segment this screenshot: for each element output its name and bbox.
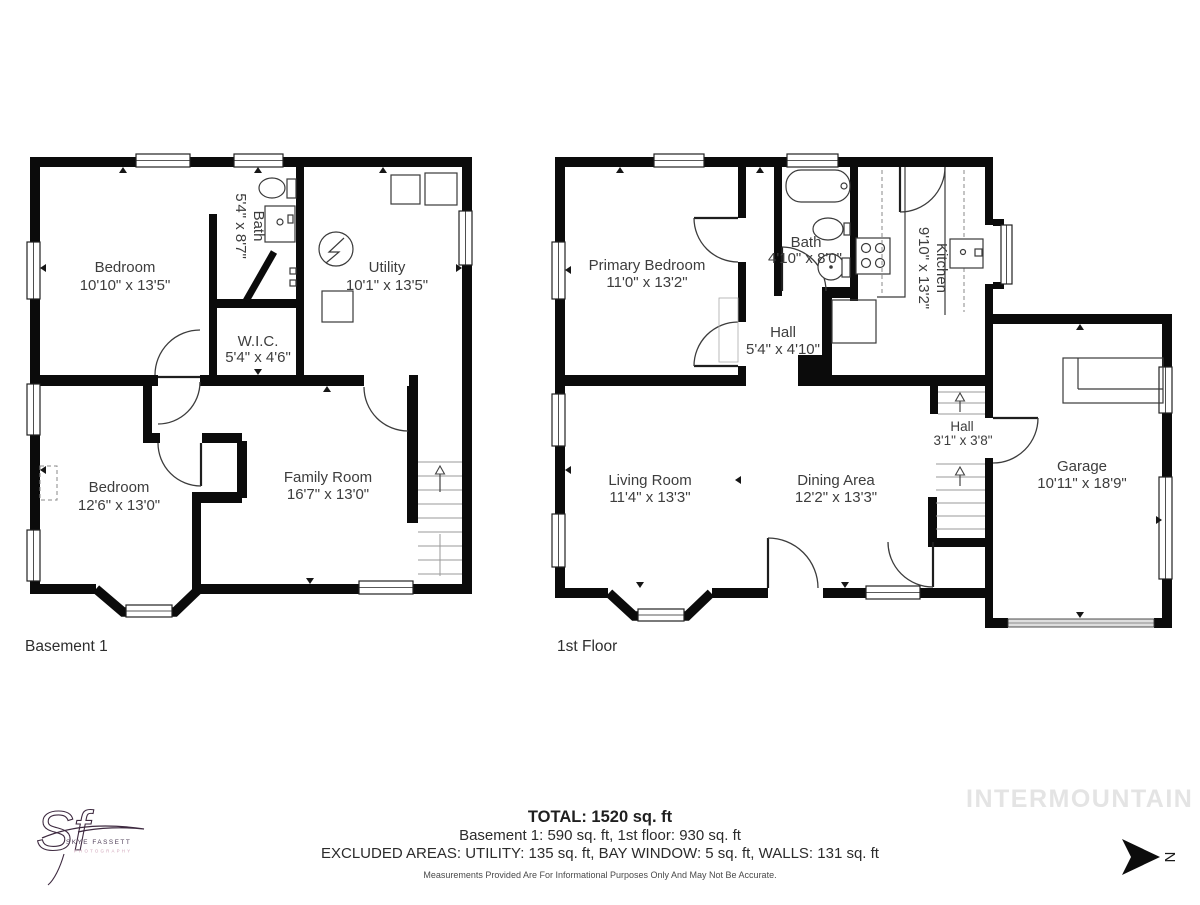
first-floor-plan: Primary Bedroom 11'0" x 13'2" Bath 4'10"… — [552, 154, 1172, 655]
room-dims: 12'2" x 13'3" — [795, 489, 877, 506]
summary-total: TOTAL: 1520 sq. ft — [528, 808, 673, 826]
window — [1159, 477, 1172, 579]
room-dims: 9'10" x 13'2" — [915, 227, 932, 309]
window — [552, 514, 565, 567]
basement-plan: Bedroom 10'10" x 13'5" Bath 5'4" x 8'7" … — [25, 154, 472, 655]
water-heater-icon — [319, 232, 353, 266]
logo-subtitle: PHOTOGRAPHY — [74, 849, 132, 854]
plumbing-fixture-icon — [290, 268, 296, 274]
chimney — [798, 355, 832, 378]
kitchen-sink-icon — [950, 239, 983, 268]
room-label-bath-rotated: Bath 5'4" x 8'7" — [232, 193, 267, 259]
bay-window — [126, 605, 172, 617]
window — [459, 211, 472, 265]
workbench-icon — [1063, 358, 1163, 403]
window — [552, 242, 565, 299]
room-dims: 11'0" x 13'2" — [606, 274, 687, 291]
summary-floors: Basement 1: 590 sq. ft, 1st floor: 930 s… — [459, 827, 742, 844]
first-floor-wall-ticks — [565, 167, 1162, 618]
basement-stairs — [418, 462, 462, 576]
room-name: Bedroom — [95, 259, 156, 276]
room-name: Utility — [369, 259, 406, 276]
floor-label-basement: Basement 1 — [25, 638, 108, 655]
room-dims: 11'4" x 13'3" — [609, 489, 690, 506]
room-dims: 5'4" x 4'6" — [225, 349, 291, 366]
floor-plan-canvas: Bedroom 10'10" x 13'5" Bath 5'4" x 8'7" … — [0, 0, 1200, 900]
room-dims: 10'10" x 13'5" — [80, 277, 171, 294]
summary-excluded: EXCLUDED AREAS: UTILITY: 135 sq. ft, BAY… — [321, 845, 880, 862]
room-name: Hall — [770, 324, 796, 341]
window — [1159, 367, 1172, 413]
room-name: W.I.C. — [238, 333, 279, 350]
room-name: Primary Bedroom — [589, 257, 706, 274]
window — [552, 394, 565, 446]
window — [1001, 225, 1012, 284]
plumbing-fixture-icon — [290, 280, 296, 286]
intermountain-watermark: INTERMOUNTAIN — [966, 785, 1193, 813]
shower-wall — [246, 252, 274, 301]
window — [27, 242, 40, 299]
room-name: Hall — [950, 419, 973, 434]
first-floor-stairs — [936, 392, 985, 529]
garage-door — [1008, 619, 1154, 627]
appliance-icon — [425, 173, 457, 205]
room-name: Bedroom — [89, 479, 150, 496]
window — [654, 154, 704, 167]
first-floor-windows — [552, 154, 1172, 621]
room-name: Bath — [250, 211, 267, 242]
window — [359, 581, 413, 594]
floorplan-page: { "plans": { "basement": { "floor_label"… — [0, 0, 1200, 900]
summary-disclaimer: Measurements Provided Are For Informatio… — [423, 870, 776, 880]
window — [27, 530, 40, 581]
logo-name: SKYE FASSETT — [66, 839, 131, 846]
room-name: Living Room — [608, 472, 691, 489]
window — [27, 384, 40, 435]
window — [787, 154, 838, 167]
basement-room-labels: Bedroom 10'10" x 13'5" Bath 5'4" x 8'7" … — [78, 193, 428, 514]
window — [234, 154, 283, 167]
bathroom-vanity-icon — [265, 206, 295, 242]
north-compass-icon: N — [1122, 839, 1178, 875]
window — [866, 586, 920, 599]
room-dims: 4'10" x 8'0" — [768, 250, 842, 267]
room-dims: 16'7" x 13'0" — [287, 486, 369, 503]
fridge-icon — [832, 300, 876, 343]
room-name: Dining Area — [797, 472, 875, 489]
room-dims: 3'1" x 3'8" — [933, 433, 992, 448]
bathtub-icon — [786, 170, 850, 202]
window — [136, 154, 190, 167]
stove-icon — [856, 238, 890, 274]
north-label: N — [1161, 852, 1178, 863]
appliance-icon — [322, 291, 353, 322]
toilet-icon — [259, 178, 296, 198]
room-name: Bath — [791, 234, 822, 251]
room-dims: 5'4" x 8'7" — [232, 193, 249, 259]
room-name: Family Room — [284, 469, 372, 486]
summary-block: TOTAL: 1520 sq. ft Basement 1: 590 sq. f… — [321, 808, 880, 880]
north-arrow-icon — [1122, 839, 1160, 875]
closet — [719, 298, 738, 362]
skye-fassett-logo: Sf SKYE FASSETT PHOTOGRAPHY — [36, 799, 144, 885]
room-name: Kitchen — [933, 243, 950, 293]
appliance-icon — [391, 175, 420, 204]
room-dims: 10'11" x 18'9" — [1037, 475, 1127, 492]
first-floor-walls — [555, 157, 1172, 628]
stairs-up-arrow-icon — [436, 466, 445, 492]
room-name: Garage — [1057, 458, 1107, 475]
room-dims: 12'6" x 13'0" — [78, 497, 160, 514]
room-dims: 5'4" x 4'10" — [746, 341, 820, 358]
floor-label-first: 1st Floor — [557, 638, 617, 655]
bay-window — [638, 609, 684, 621]
room-dims: 10'1" x 13'5" — [346, 277, 428, 294]
